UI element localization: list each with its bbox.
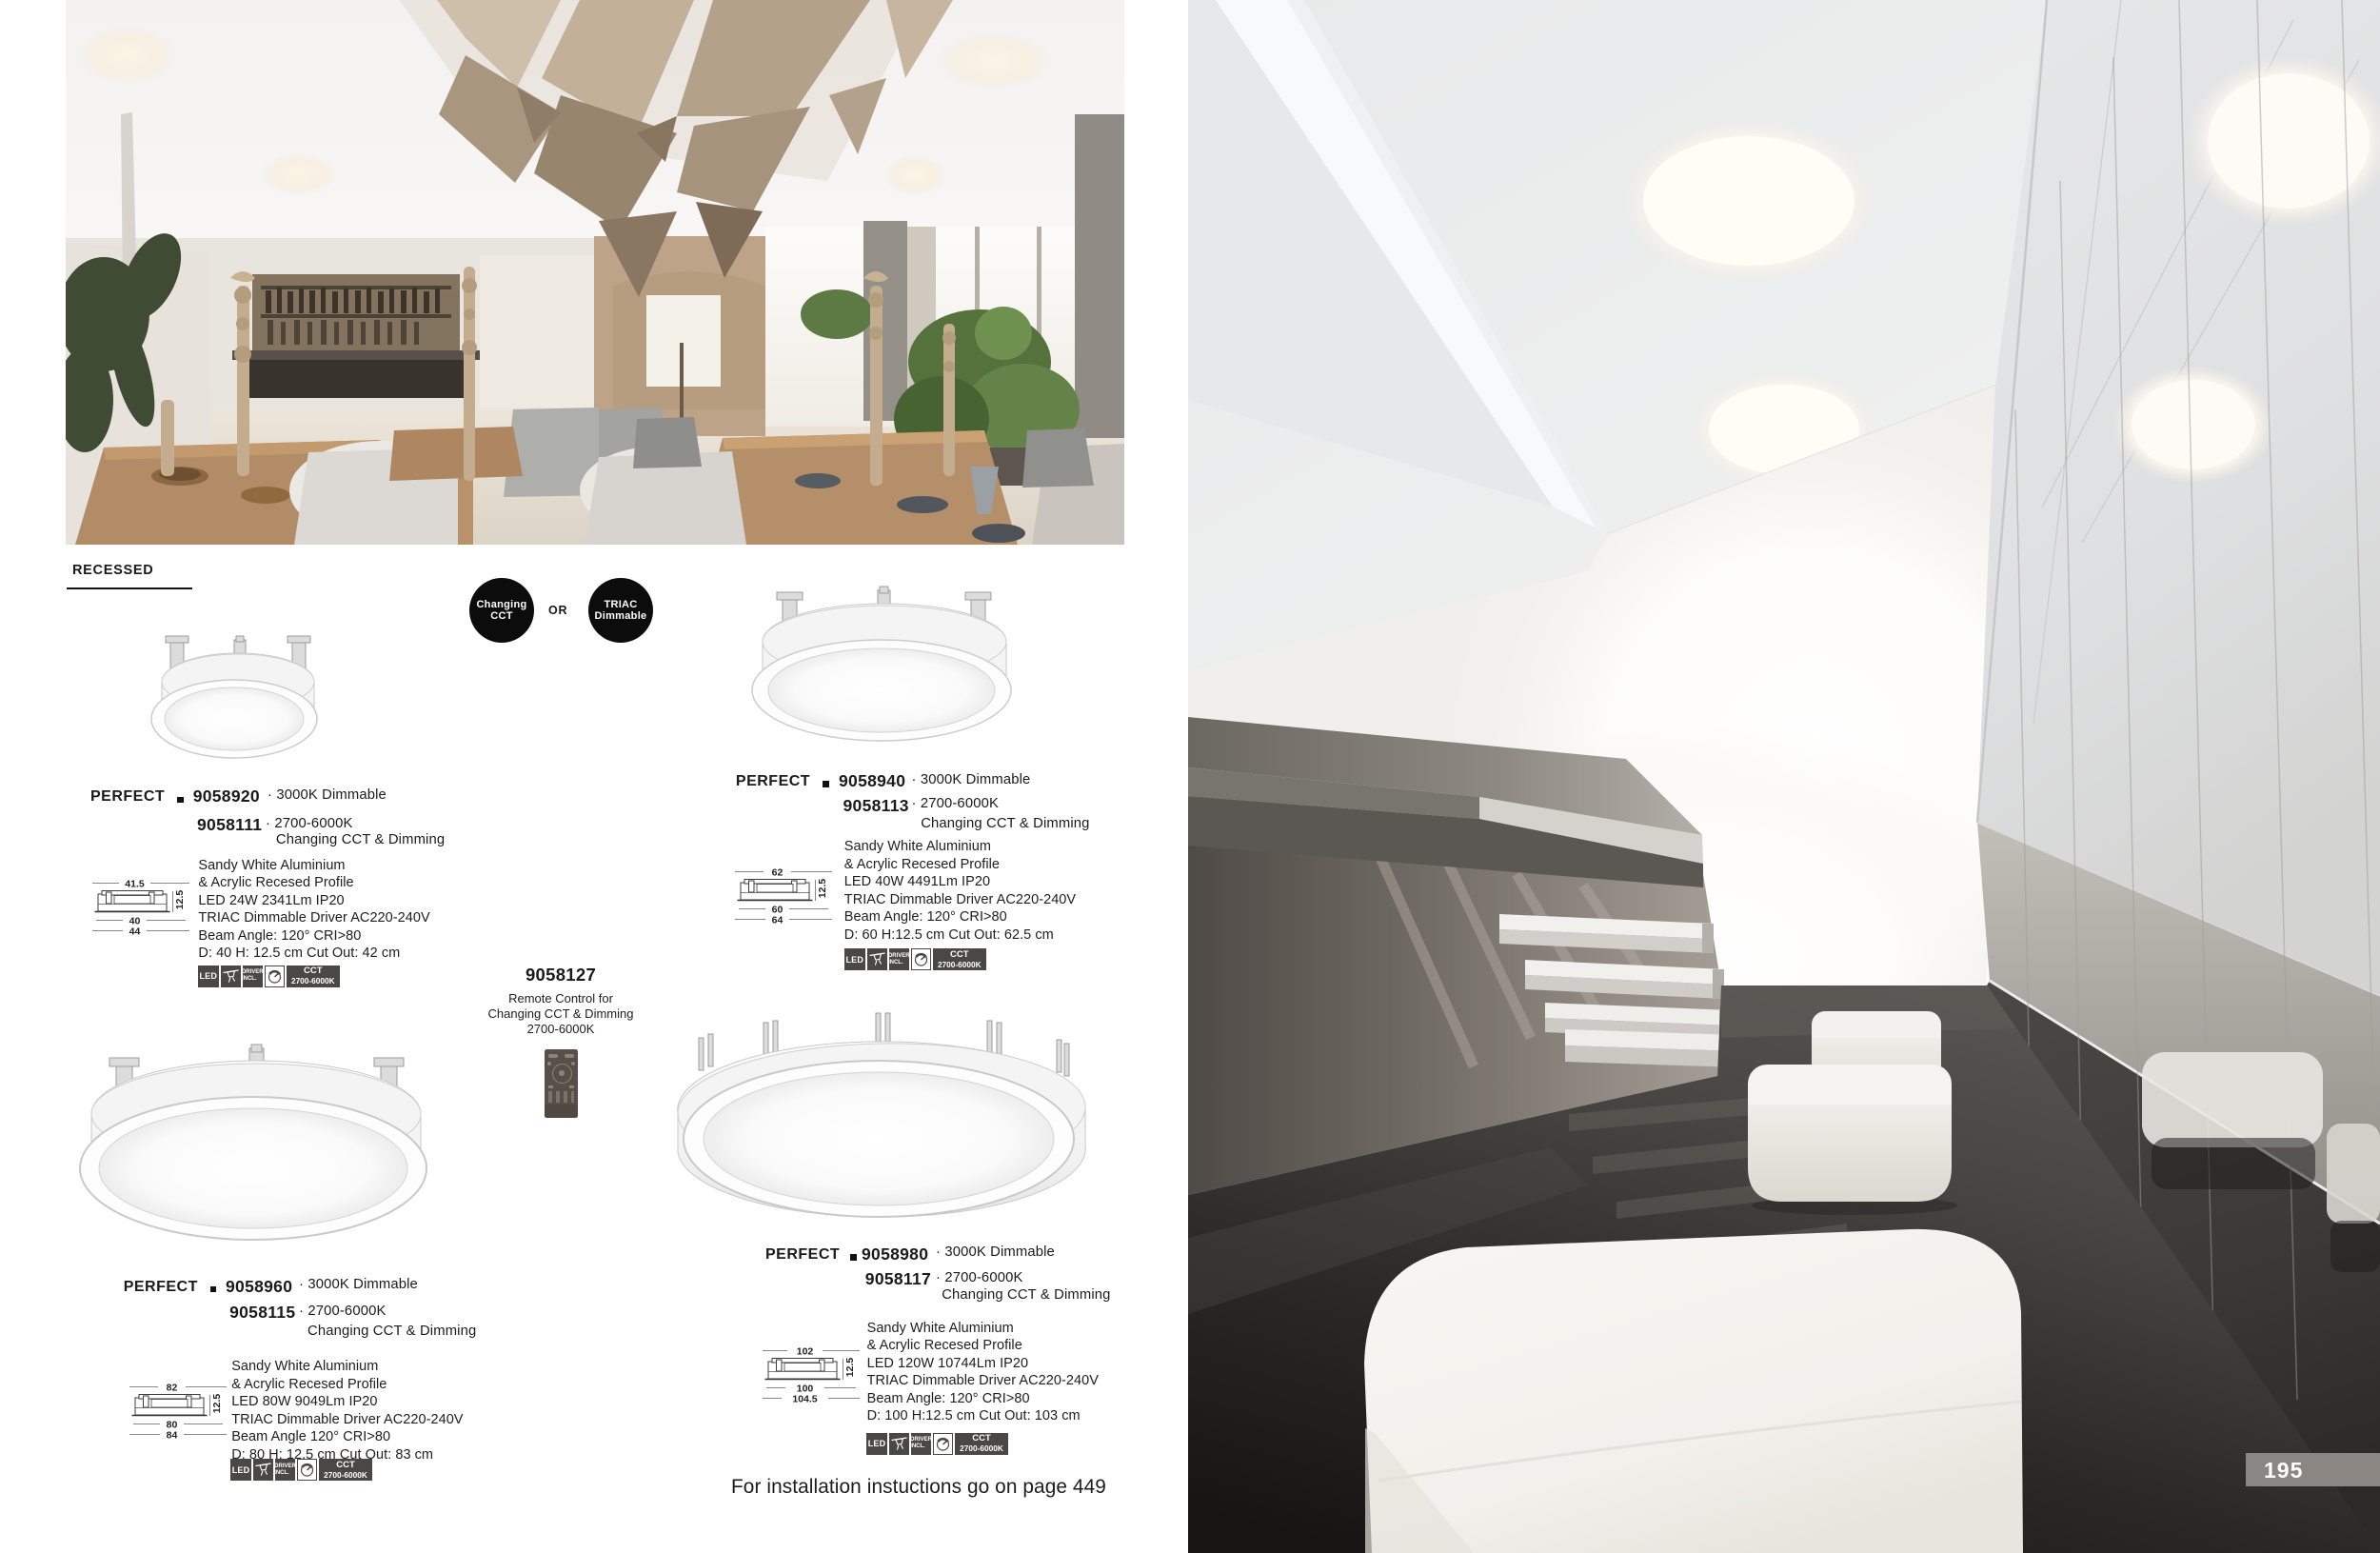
svg-text:104.5: 104.5 — [792, 1394, 817, 1405]
svg-text:64: 64 — [772, 915, 783, 926]
svg-text:62: 62 — [772, 867, 783, 879]
svg-text:84: 84 — [167, 1430, 178, 1442]
svg-text:44: 44 — [129, 926, 141, 938]
svg-text:12.5: 12.5 — [174, 890, 186, 910]
svg-text:12.5: 12.5 — [844, 1358, 856, 1378]
svg-text:41.5: 41.5 — [125, 879, 145, 890]
svg-text:102: 102 — [797, 1346, 814, 1358]
svg-text:82: 82 — [167, 1383, 178, 1394]
svg-text:12.5: 12.5 — [211, 1394, 223, 1414]
svg-text:12.5: 12.5 — [817, 879, 828, 899]
